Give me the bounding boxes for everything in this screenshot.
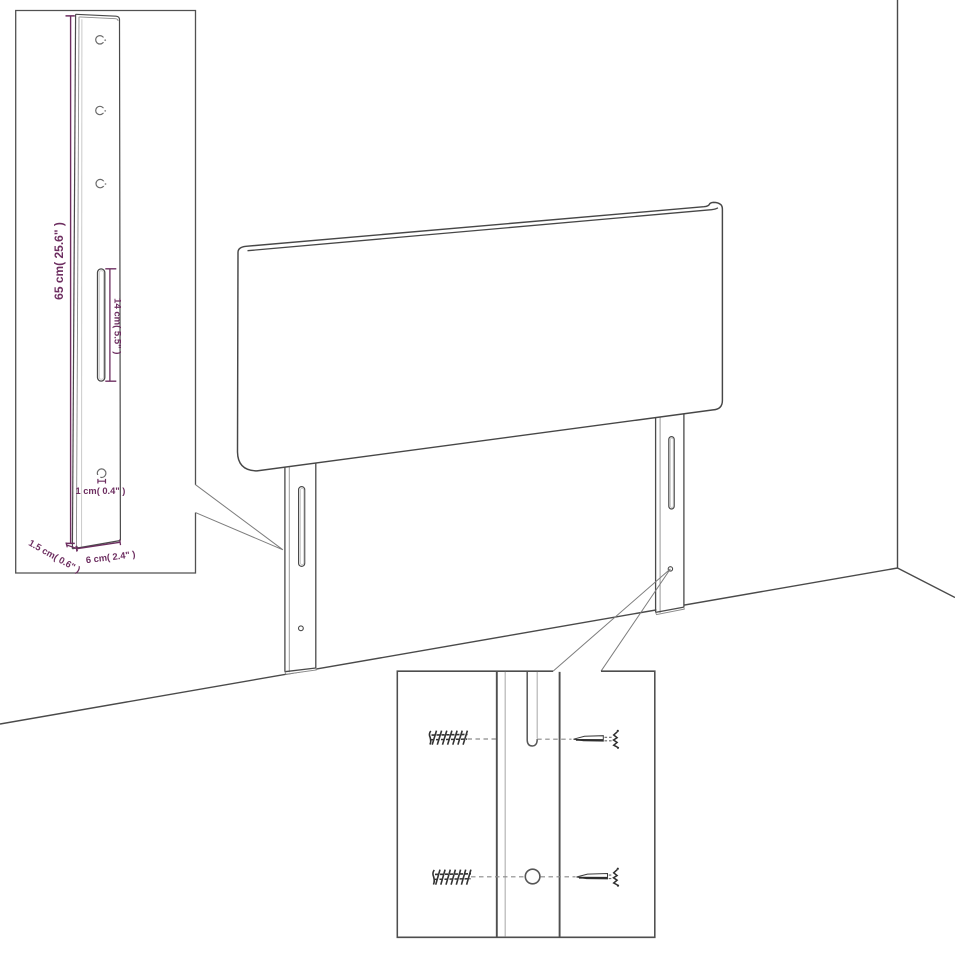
svg-text:14 cm( 5.5" ): 14 cm( 5.5" ): [112, 298, 123, 354]
svg-text:1 cm( 0.4" ): 1 cm( 0.4" ): [76, 486, 126, 496]
svg-text:6 cm( 2.4" ): 6 cm( 2.4" ): [85, 549, 136, 565]
svg-text:65 cm( 25.6" ): 65 cm( 25.6" ): [52, 222, 66, 300]
